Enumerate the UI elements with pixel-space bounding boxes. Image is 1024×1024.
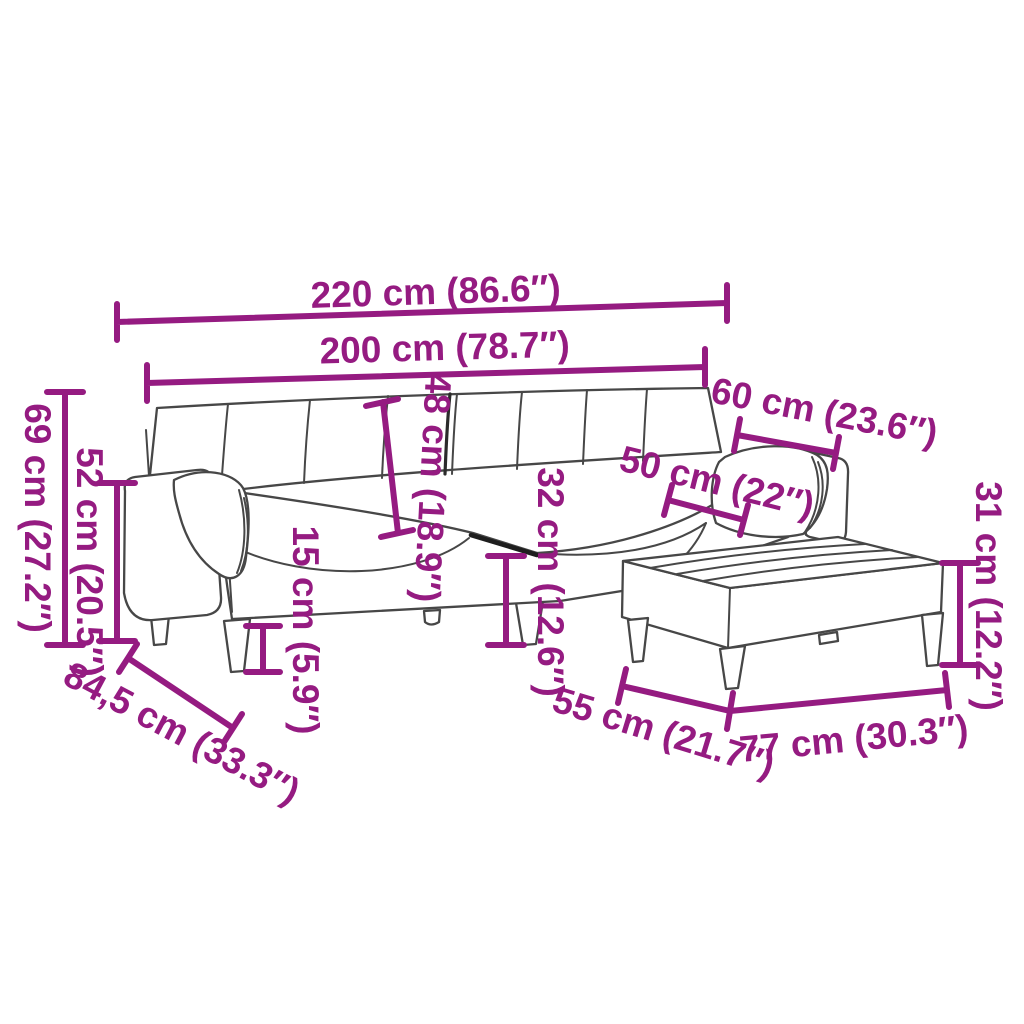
ottoman-latch-tab bbox=[819, 632, 838, 644]
dimension-31: 31 cm (12.2″) bbox=[942, 481, 1009, 711]
dim-label-845: 84,5 cm (33.3″) bbox=[57, 654, 306, 812]
ottoman-leg bbox=[720, 646, 745, 689]
backrest-left-corner bbox=[146, 430, 149, 476]
dimension-77: 77 cm (30.3″) bbox=[730, 673, 970, 770]
dim-label-15: 15 cm (5.9″) bbox=[285, 526, 326, 735]
dim-label-200: 200 cm (78.7″) bbox=[319, 324, 570, 372]
dim-label-77: 77 cm (30.3″) bbox=[738, 707, 970, 770]
dim-label-69: 69 cm (27.2″) bbox=[17, 403, 58, 633]
product-dimension-diagram: 220 cm (86.6″) 200 cm (78.7″) 69 cm (27.… bbox=[0, 0, 1024, 1024]
dim-label-31: 31 cm (12.2″) bbox=[968, 481, 1009, 711]
dim-label-32: 32 cm (12.6″) bbox=[530, 467, 571, 697]
dim-line bbox=[246, 626, 280, 672]
ottoman-leg bbox=[922, 613, 943, 666]
ottoman-leg bbox=[628, 618, 648, 662]
sofa-leg bbox=[424, 610, 440, 625]
sofa-dimension-drawing: 220 cm (86.6″) 200 cm (78.7″) 69 cm (27.… bbox=[0, 0, 1024, 1024]
dim-line bbox=[730, 673, 949, 711]
dim-label-220: 220 cm (86.6″) bbox=[310, 267, 561, 316]
dim-label-60: 60 cm (23.6″) bbox=[708, 370, 941, 454]
ottoman bbox=[622, 537, 943, 689]
dim-label-52: 52 cm (20.5″) bbox=[69, 447, 110, 677]
